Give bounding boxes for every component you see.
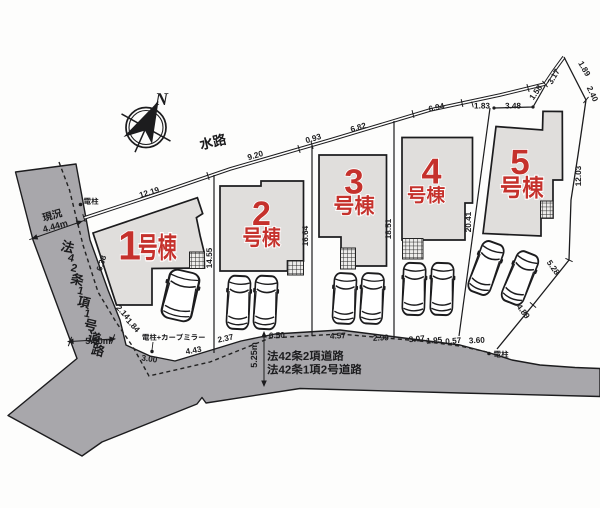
svg-text:1.95: 1.95 <box>426 335 443 345</box>
svg-text:16.64: 16.64 <box>301 225 310 246</box>
svg-text:2: 2 <box>285 365 291 377</box>
svg-text:2: 2 <box>321 365 327 377</box>
svg-text:N: N <box>154 89 169 109</box>
svg-text:18.51: 18.51 <box>384 218 393 239</box>
svg-text:6.50: 6.50 <box>269 331 286 341</box>
svg-text:2.99: 2.99 <box>373 333 390 343</box>
svg-text:4.57: 4.57 <box>330 331 347 341</box>
svg-text:3.48: 3.48 <box>505 102 521 111</box>
svg-text:3.60: 3.60 <box>469 336 486 346</box>
svg-text:1.83: 1.83 <box>474 102 490 111</box>
svg-text:0.57: 0.57 <box>445 336 462 346</box>
svg-text:2: 2 <box>285 351 291 363</box>
svg-text:+: + <box>157 333 162 342</box>
svg-text:3.07: 3.07 <box>408 334 425 344</box>
svg-text:12.03: 12.03 <box>574 165 583 186</box>
svg-text:14.55: 14.55 <box>205 247 214 268</box>
svg-text:1: 1 <box>118 223 141 269</box>
svg-text:1: 1 <box>303 365 310 377</box>
svg-text:2: 2 <box>303 351 309 363</box>
svg-text:20.41: 20.41 <box>464 211 473 232</box>
svg-text:5.25m: 5.25m <box>249 342 259 368</box>
